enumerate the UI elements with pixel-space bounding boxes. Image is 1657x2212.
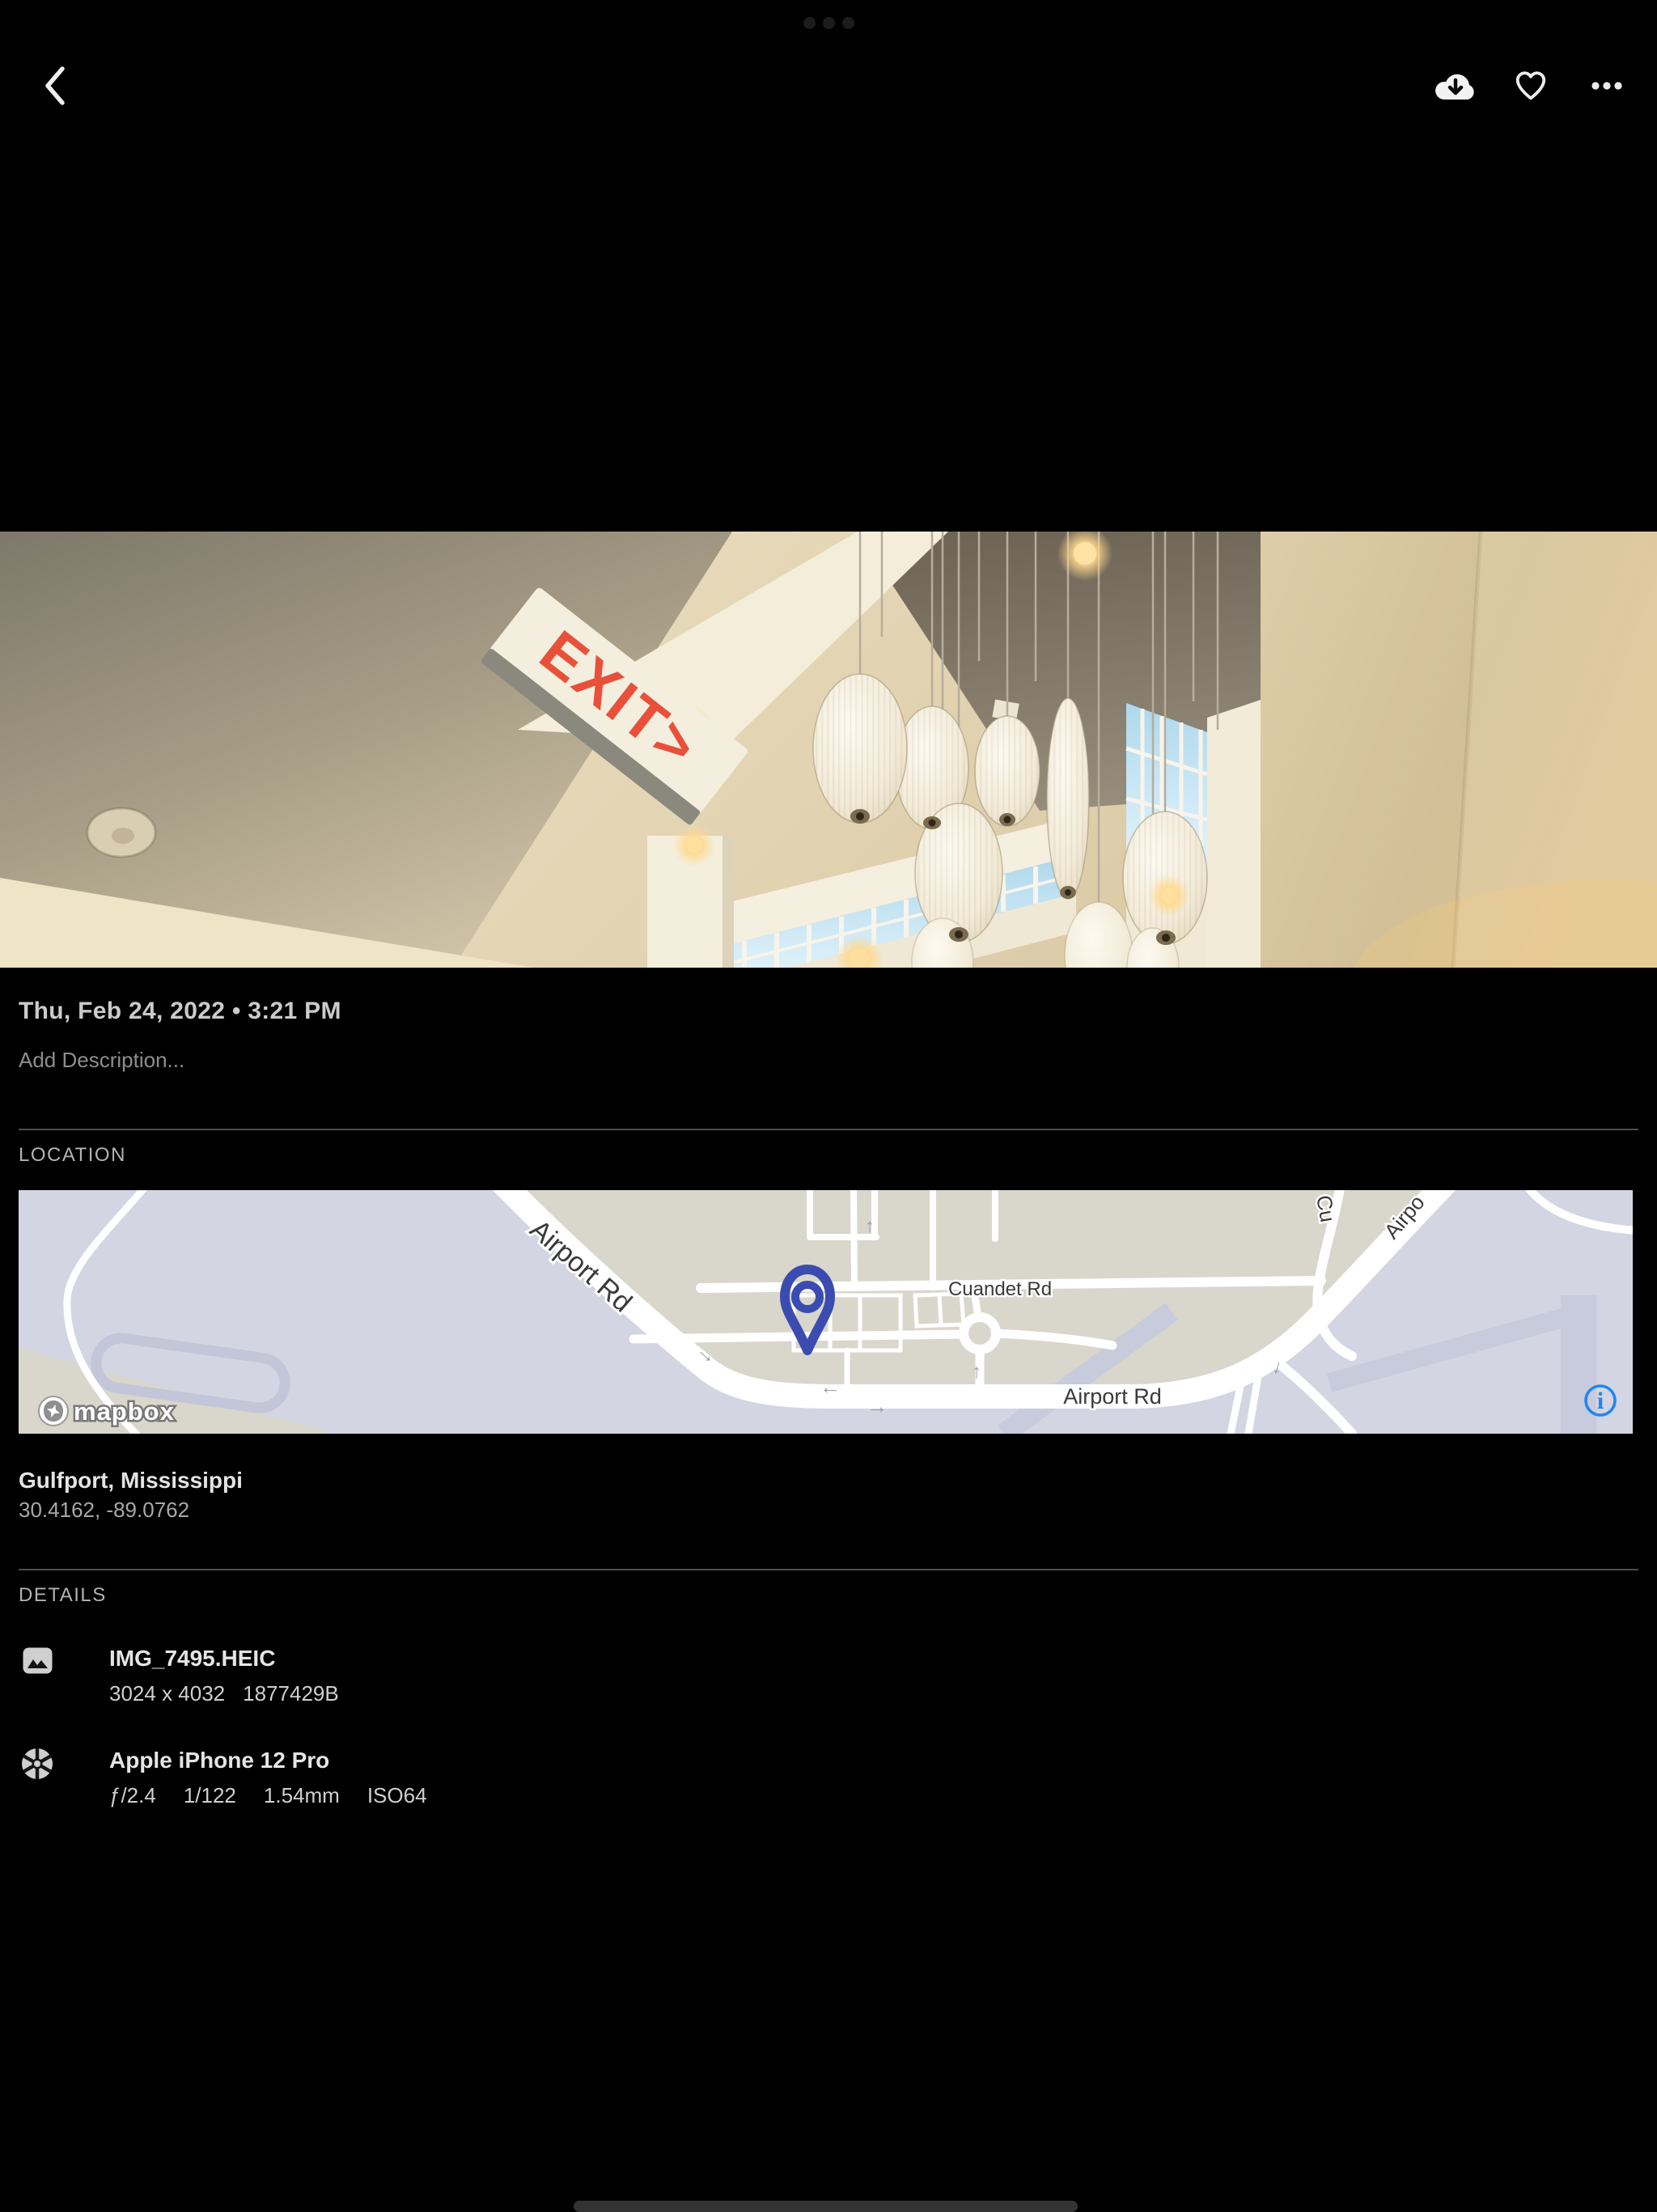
photo-viewer[interactable]: EXIT> xyxy=(0,532,1657,968)
divider xyxy=(19,1569,1638,1570)
dot xyxy=(823,17,835,29)
favorite-button[interactable] xyxy=(1505,61,1557,110)
cloud-download-icon xyxy=(1434,70,1476,102)
smoke-detector xyxy=(87,808,155,857)
camera-focal-length: 1.54mm xyxy=(264,1783,340,1807)
ellipsis-icon xyxy=(1583,78,1631,94)
details-section-header: DETAILS xyxy=(19,1584,107,1607)
file-meta: 3024 x 40321877429B xyxy=(109,1681,339,1706)
dot xyxy=(803,17,816,29)
image-file-icon xyxy=(23,1647,53,1678)
dot xyxy=(842,17,854,29)
divider xyxy=(19,1129,1638,1130)
camera-shutter: 1/122 xyxy=(184,1783,236,1807)
file-size: 1877429B xyxy=(243,1681,339,1706)
svg-text:←: ← xyxy=(820,1375,841,1399)
heart-icon xyxy=(1515,70,1547,101)
camera-model: Apple iPhone 12 Pro xyxy=(109,1748,427,1773)
svg-text:↑: ↑ xyxy=(972,1361,981,1383)
camera-settings: ƒ/2.41/1221.54mmISO64 xyxy=(109,1783,427,1808)
svg-text:↑: ↑ xyxy=(865,1215,875,1237)
back-button[interactable] xyxy=(31,60,79,112)
file-name: IMG_7495.HEIC xyxy=(109,1646,339,1672)
gps-coordinates: 30.4162, -89.0762 xyxy=(19,1498,189,1523)
download-button[interactable] xyxy=(1426,61,1484,110)
info-icon-glyph: i xyxy=(1597,1388,1604,1414)
camera-aperture: ƒ/2.4 xyxy=(109,1783,156,1807)
camera-aperture-icon xyxy=(21,1748,53,1784)
file-info-row: IMG_7495.HEIC 3024 x 40321877429B xyxy=(109,1646,339,1706)
map-canvas: ← → → ↑ ↑ ↓ Airport Rd Cuandet Rd Airpor… xyxy=(19,1190,1633,1434)
camera-iso: ISO64 xyxy=(367,1783,427,1807)
right-pillar xyxy=(1207,700,1261,968)
mapbox-attribution[interactable]: mapbox xyxy=(39,1396,175,1426)
photo-interior-atrium: EXIT> xyxy=(0,532,1657,968)
chevron-left-icon xyxy=(44,65,66,107)
road-label-clipped-cu: Cu xyxy=(1312,1193,1340,1224)
mapbox-wordmark: mapbox xyxy=(74,1397,175,1426)
date-time-label[interactable]: Thu, Feb 24, 2022 • 3:21 PM xyxy=(19,998,341,1025)
road-label-airport-lower: Airport Rd xyxy=(1063,1384,1162,1409)
wall-plane-right xyxy=(1261,532,1657,968)
file-resolution: 3024 x 4032 xyxy=(109,1681,225,1706)
location-section-header: LOCATION xyxy=(19,1144,126,1167)
location-map[interactable]: ← → → ↑ ↑ ↓ Airport Rd Cuandet Rd Airpor… xyxy=(19,1190,1633,1434)
more-button[interactable] xyxy=(1576,61,1638,110)
road-label-cuandet: Cuandet Rd xyxy=(948,1278,1052,1300)
place-name: Gulfport, Mississippi xyxy=(19,1468,243,1494)
description-input[interactable]: Add Description... xyxy=(19,1048,184,1073)
map-roundabout xyxy=(964,1317,996,1350)
svg-text:→: → xyxy=(867,1394,888,1418)
multitasking-indicator[interactable] xyxy=(780,13,877,32)
camera-info-row: Apple iPhone 12 Pro ƒ/2.41/1221.54mmISO6… xyxy=(109,1748,427,1808)
